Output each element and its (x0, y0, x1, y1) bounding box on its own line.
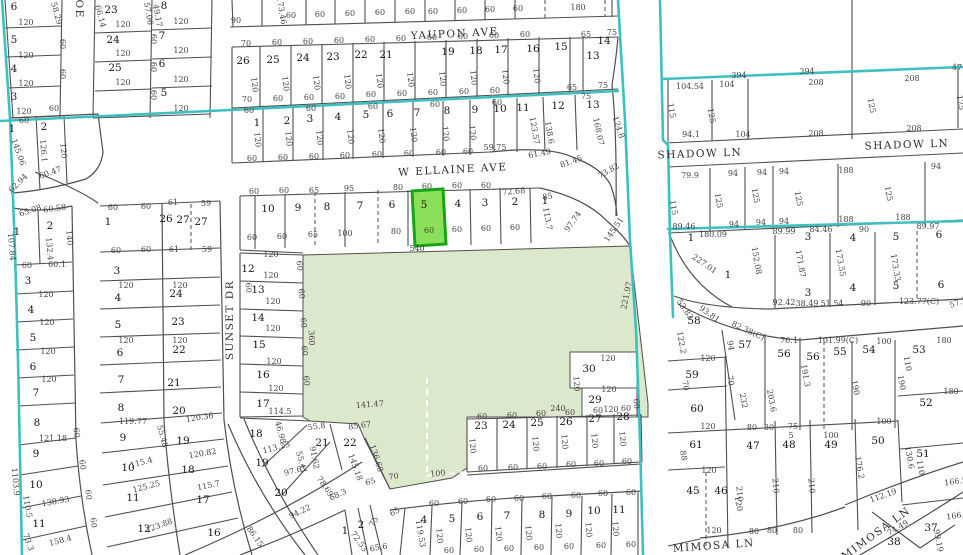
lot-number: 1 (105, 216, 112, 228)
dimension-label: 60 (345, 9, 355, 18)
dimension-label: 60 (490, 86, 500, 95)
dimension-label: 60 (596, 541, 606, 550)
lot-number: 16 (526, 43, 540, 55)
lot-number: 10 (587, 505, 600, 517)
dimension-label: 120 (280, 76, 291, 92)
dimension-label: 60 (478, 464, 488, 473)
dimension-label: 60 (542, 492, 552, 501)
dimension-label: 120 (263, 250, 278, 259)
lot-number: 46 (714, 485, 728, 497)
dimension-label: 60 (474, 545, 484, 554)
lot-number: 38 (887, 536, 900, 548)
lot-number: 11 (516, 102, 529, 114)
dimension-label: 94 (728, 169, 738, 178)
lot-number: 15 (252, 339, 265, 351)
dimension-label: 60 (272, 38, 282, 47)
dimension-label: 60 (279, 186, 289, 195)
lot-number: 9 (295, 202, 302, 214)
dimension-label: 60 (534, 543, 544, 552)
street-label-sunset-dr: SUNSET DR (224, 280, 236, 360)
dimension-label: 60 (78, 459, 88, 470)
dimension-label: 100 (430, 468, 446, 478)
lot-number: 12 (137, 523, 150, 535)
dimension-label: 60 (244, 106, 254, 115)
dimension-label: 120 (41, 375, 56, 384)
lot-number: 3 (25, 275, 32, 287)
dimension-label: 60 (396, 34, 406, 43)
dimension-label: 104 (719, 80, 734, 89)
dimension-label: 60 (247, 233, 257, 242)
dimension-label: 60 (513, 4, 523, 13)
dimension-label: 60 (22, 261, 32, 270)
dimension-label: 120 (118, 336, 133, 345)
lot-number: 26 (559, 416, 573, 428)
dimension-label: 84.46 (810, 225, 833, 234)
lot-number: 8 (118, 402, 125, 414)
dimension-label: 70 (680, 380, 691, 392)
dimension-label: 120 (173, 17, 188, 26)
dimension-label: 60 (485, 5, 495, 14)
dimension-label: 60 (108, 203, 118, 212)
dimension-label: 60 (429, 499, 439, 508)
lot-number: 13 (586, 99, 599, 111)
dimension-label: 394 (799, 67, 814, 76)
lot-number: 58 (687, 315, 700, 327)
dimension-label: 120 (39, 318, 54, 327)
dimension-label: 60 (459, 87, 469, 96)
dimension-label: 120 (468, 70, 479, 86)
lot-number: 13 (251, 284, 264, 296)
dimension-label: 60 (300, 345, 310, 356)
dimension-label: 120 (252, 132, 263, 148)
dimension-label: 120 (434, 528, 444, 544)
dimension-label: 101.99(C) (818, 336, 858, 345)
dimension-label: 60 (302, 375, 312, 386)
lot-number: 25 (108, 62, 121, 74)
dimension-label: 60 (365, 35, 375, 44)
lot-number: 5 (893, 280, 900, 292)
dimension-label: 79.9 (681, 171, 699, 180)
lot-number: 57 (738, 339, 751, 351)
dimension-label: 80 (767, 526, 777, 535)
lot-number: 2 (358, 519, 365, 531)
lot-number: 24 (169, 288, 183, 300)
dimension-label: 60 (404, 149, 414, 158)
dimension-label: 120 (583, 522, 593, 538)
lot-number: 23 (104, 4, 117, 16)
dimension-label: 394 (731, 71, 746, 80)
dimension-label: 120 (376, 128, 387, 144)
lot-number: 6 (117, 347, 124, 359)
lot-number: 52 (919, 397, 932, 409)
dimension-label: 60 (422, 182, 432, 191)
dimension-label: 94 (729, 220, 739, 229)
dimension-label: 60 (84, 489, 94, 500)
lot-number: 8 (324, 201, 331, 213)
lot-number: 37 (924, 522, 937, 534)
dimension-label: 60 (149, 90, 158, 100)
dimension-label: 120 (700, 422, 715, 431)
lot-number: 27 (194, 216, 207, 228)
lot-number: 10 (121, 462, 134, 474)
lot-number: 3 (307, 113, 314, 125)
lot-number: 26 (159, 213, 173, 225)
lot-number: 56 (777, 348, 791, 360)
dimension-label: 94 (757, 168, 767, 177)
lot-number: 23 (474, 420, 487, 432)
lot-number: 7 (33, 387, 40, 399)
lot-number: 21 (315, 437, 328, 449)
lot-number: 3 (114, 265, 121, 277)
dimension-label: 51.54 (821, 299, 844, 308)
lot-number: 11 (612, 504, 625, 516)
dimension-label: 94 (779, 167, 789, 176)
lot-number: 22 (172, 344, 185, 356)
dimension-label: 65 (308, 230, 318, 239)
lot-number: 5 (30, 332, 37, 344)
dimension-label: 60 (564, 542, 574, 551)
dimension-label: 60 (504, 544, 514, 553)
dimension-label: 100 (876, 337, 891, 346)
lot-number: 20 (274, 487, 287, 499)
lot-number: 4 (115, 292, 122, 304)
lot-number: 5 (893, 231, 900, 243)
lot-number: 16 (256, 369, 270, 381)
dimension-label: 114.5 (269, 407, 292, 416)
dimension-label: 120 (266, 357, 281, 366)
dimension-label: 80 (793, 526, 803, 535)
lot-number: 55 (833, 346, 846, 358)
dimension-label: 120 (58, 143, 68, 159)
lot-number: 8 (539, 509, 546, 521)
dimension-label: 100 (337, 229, 352, 238)
lot-number: 3 (805, 287, 812, 299)
dimension-label: 70 (241, 39, 251, 48)
dimension-label: 60 (508, 463, 518, 472)
dimension-label: 60 (510, 223, 520, 232)
dimension-label: 120 (173, 46, 188, 55)
lot-number: 6 (11, 1, 18, 13)
dimension-label: 120 (463, 527, 473, 543)
dimension-label: 60 (334, 36, 344, 45)
dimension-label: 140 (64, 230, 74, 246)
dimension-label: 120 (173, 75, 188, 84)
dimension-label: 120 (500, 69, 511, 85)
dimension-label: 60 (537, 462, 547, 471)
lot-number: 6 (477, 511, 484, 523)
lot-number: 1 (542, 195, 549, 207)
dimension-label: 60 (598, 489, 608, 498)
dimension-label: 60 (299, 317, 309, 328)
lot-number: 6 (936, 229, 943, 241)
dimension-label: 60 (247, 154, 257, 163)
dimension-label: 208 (906, 124, 921, 133)
lot-number: 27 (176, 214, 189, 226)
dimension-label: 120 (268, 384, 283, 393)
lot-number: 5 (363, 109, 370, 121)
lot-number: 47 (746, 440, 759, 452)
dimension-label: 60 (632, 398, 642, 409)
dimension-label: 100 (876, 417, 891, 426)
lot-number: 21 (379, 49, 392, 61)
dimension-label: 60 (428, 88, 438, 97)
lot-number: 23 (171, 316, 184, 328)
lot-number: 6 (938, 279, 945, 291)
dimension-label: 60 (444, 546, 454, 555)
dimension-label: 65 (309, 186, 319, 195)
dimension-label: 61 (168, 198, 178, 207)
lot-number: 24 (502, 419, 516, 431)
dimension-label: 60 (452, 225, 462, 234)
street-label-moe-st: MOE (73, 0, 85, 19)
dimension-label: 60 (297, 288, 307, 299)
dimension-label: 47 (952, 63, 962, 72)
dimension-label: 104 (735, 130, 750, 139)
lot-number: 30 (582, 363, 595, 375)
dimension-label: 60 (372, 150, 382, 159)
dimension-label: 60 (111, 246, 121, 255)
lot-number: 8 (161, 0, 168, 12)
dimension-label: 60 (457, 6, 467, 15)
lot-number: 54 (862, 344, 876, 356)
dimension-label: 120 (173, 104, 188, 113)
lot-number: 12 (551, 100, 564, 112)
lot-number: 17 (256, 398, 269, 410)
lot-number: 2 (41, 121, 48, 133)
dimension-label: 210 (770, 478, 780, 494)
map-viewport: 12058.29120601206012060145.06126.1120606… (0, 0, 963, 555)
lot-number: 7 (159, 30, 166, 42)
dimension-label: 120 (408, 127, 419, 143)
dimension-label: 120 (701, 466, 716, 475)
lot-number: 7 (357, 200, 364, 212)
parcel-map-svg: 12058.29120601206012060145.06126.1120606… (0, 0, 963, 555)
lot-number: 4 (850, 282, 857, 294)
lot-number: 10 (261, 203, 274, 215)
dimension-label: 120 (249, 77, 260, 93)
dimension-label: 120 (265, 324, 280, 333)
lot-number: 7 (504, 510, 511, 522)
dimension-label: 60 (397, 89, 407, 98)
dimension-label: 60.1 (48, 260, 66, 269)
dimension-label: 94 (931, 162, 941, 171)
dimension-label: 60 (452, 181, 462, 190)
dimension-label: 60 (428, 7, 438, 16)
lot-number: 9 (566, 508, 573, 520)
dimension-label: 120 (283, 131, 294, 147)
dimension-label: 120 (18, 79, 33, 88)
dimension-label: 120 (493, 526, 503, 542)
dimension-label: 88 (678, 450, 689, 462)
lot-number: 1 (254, 117, 261, 129)
lot-number: 60 (690, 403, 703, 415)
dimension-label: 120 (440, 126, 451, 142)
lot-number: 10 (493, 103, 506, 115)
lot-number: 7 (118, 374, 125, 386)
dimension-label: 94 (779, 217, 789, 226)
dimension-label: 89.46 (673, 222, 696, 231)
lot-number: 10 (29, 479, 42, 491)
lot-number: 19 (176, 435, 189, 447)
dimension-label: 120 (115, 20, 130, 29)
dimension-label: 65 (581, 30, 591, 39)
dimension-label: 60 (286, 11, 296, 20)
dimension-label: 60 (309, 152, 319, 161)
dimension-label: 119.77 (119, 417, 147, 426)
dimension-label: 120 (617, 431, 627, 447)
dimension-label: 120 (610, 521, 620, 537)
dimension-label: 70 (388, 471, 399, 481)
dimension-label: 80 (764, 423, 774, 432)
dimension-label: 59 (201, 199, 211, 208)
dimension-label: 60 (19, 116, 29, 125)
lot-number: 24 (296, 52, 310, 64)
lot-number: 4 (421, 514, 428, 526)
lot-number: 2 (512, 196, 519, 208)
highlighted-lot-selected[interactable] (412, 189, 446, 246)
dimension-label: 208 (808, 78, 823, 87)
lot-number: 25 (266, 54, 279, 66)
lot-number: 18 (469, 45, 482, 57)
dimension-label: 120 (437, 71, 448, 87)
dimension-label: 94 (725, 340, 736, 352)
lot-number: 51 (916, 448, 929, 460)
lot-number: 6 (387, 108, 394, 120)
dimension-label: 120 (16, 107, 31, 116)
dimension-label: 60 (303, 37, 313, 46)
dimension-label: 120 (601, 385, 616, 394)
dimension-label: 120 (531, 68, 542, 84)
dimension-label: 65 (567, 83, 577, 92)
lot-number: 5 (115, 319, 122, 331)
dimension-label: 120 (40, 347, 55, 356)
lot-number: 8 (444, 105, 451, 117)
dimension-label: 60 (486, 495, 496, 504)
dimension-label: 70 (725, 375, 736, 387)
lot-number: 49 (824, 439, 837, 451)
dimension-label: 60 (335, 92, 345, 101)
lot-number: 56 (806, 351, 820, 363)
dimension-label: 60 (626, 488, 636, 497)
dimension-label: 188 (895, 213, 910, 222)
dimension-label: 92.42 (773, 298, 796, 307)
lot-number: 50 (871, 435, 884, 447)
dimension-label: 60 (626, 540, 636, 549)
dimension-label: 60 (306, 104, 316, 113)
dimension-label: 360 (307, 330, 317, 346)
lot-number: 1 (9, 123, 16, 135)
dimension-label: 60 (149, 62, 158, 72)
dimension-label: 60 (58, 69, 67, 79)
lot-number: 11 (32, 518, 45, 530)
dimension-label: 60 (58, 39, 67, 49)
dimension-label: 60 (514, 494, 524, 503)
dimension-label: 120 (700, 354, 715, 363)
dimension-label: 80 (749, 527, 759, 536)
dimension-label: 90 (231, 16, 241, 25)
dimension-label: 120 (265, 297, 280, 306)
dimension-label: 120 (342, 74, 353, 90)
dimension-label: 60 (304, 93, 314, 102)
lot-number: 29 (588, 394, 601, 406)
lot-number: 2 (47, 220, 54, 232)
dimension-label: 540 (409, 244, 424, 253)
dimension-label: 60 (424, 226, 434, 235)
lot-number: 22 (354, 49, 367, 61)
lot-number: 5 (449, 513, 456, 525)
dimension-label: 80 (391, 227, 401, 236)
lot-number: 4 (335, 111, 342, 123)
dimension-label: 120 (18, 51, 33, 60)
lot-number: 7 (414, 107, 421, 119)
dimension-label: 80 (393, 183, 403, 192)
dimension-label: 120 (374, 73, 385, 89)
dimension-label: 120 (345, 129, 356, 145)
dimension-label: 210 (806, 478, 816, 494)
dimension-label: 94 (756, 218, 766, 227)
lot-number: 26 (236, 55, 250, 67)
dimension-label: 90 (861, 299, 871, 308)
dimension-label: 120 (706, 526, 721, 535)
dimension-label: 60 (89, 517, 99, 528)
lot-number: 17 (494, 44, 507, 56)
dimension-label: 120 (523, 525, 533, 541)
lot-number: 6 (159, 58, 166, 70)
dimension-label: 60 (49, 104, 59, 113)
lot-number: 25 (530, 417, 543, 429)
lot-number: 23 (326, 51, 339, 63)
lot-number: 21 (167, 377, 180, 389)
dimension-label: 60 (458, 497, 468, 506)
dimension-label: 60 (149, 34, 158, 44)
dimension-label: 60 (481, 181, 491, 190)
lot-number: 5 (11, 34, 18, 46)
dimension-label: 120 (600, 354, 615, 363)
dimension-label: 120 (118, 281, 133, 290)
dimension-label: 120 (589, 433, 599, 449)
dimension-label: 120 (553, 523, 563, 539)
lot-number: 53 (912, 344, 925, 356)
dimension-label: 104.54 (676, 82, 704, 91)
lot-number: 48 (782, 439, 795, 451)
lot-number: 1 (725, 269, 732, 281)
dimension-label: 60 (366, 90, 376, 99)
lot-number: 45 (686, 485, 699, 497)
dimension-label: 120 (115, 49, 130, 58)
dimension-label: 120 (115, 78, 130, 87)
dimension-label: 180 (570, 3, 585, 12)
dimension-label: 95 (344, 184, 354, 193)
lot-number: 17 (196, 494, 209, 506)
dimension-label: 90 (859, 225, 869, 234)
lot-number: 3 (805, 231, 812, 243)
lot-number: 11 (126, 492, 139, 504)
dimension-label: 60 (566, 460, 576, 469)
lot-number: 13 (586, 50, 599, 62)
dimension-label: 80 (747, 423, 757, 432)
dimension-label: 121.18 (39, 434, 67, 443)
lot-number: 8 (34, 417, 41, 429)
dimension-label: 180.09 (699, 230, 727, 239)
dimension-label: 75 (788, 422, 798, 431)
lot-number: 61 (689, 439, 702, 451)
lot-number: 3 (11, 91, 18, 103)
lot-number: 5 (161, 87, 168, 99)
lot-number: 4 (455, 198, 462, 210)
dimension-label: 120 (38, 290, 53, 299)
lot-number: 14 (597, 35, 611, 47)
lot-number: 18 (249, 428, 262, 440)
